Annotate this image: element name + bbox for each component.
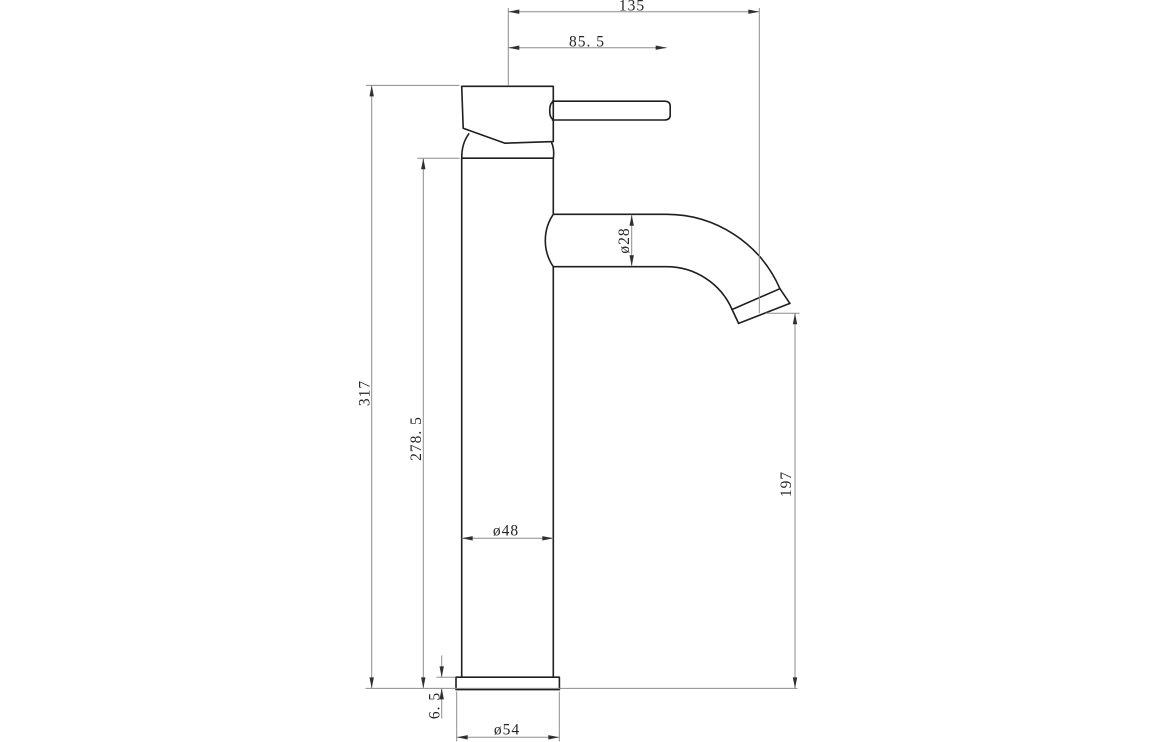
arrowhead xyxy=(508,10,519,14)
dimension-lines xyxy=(366,8,800,742)
dim-label-spout-diameter: ø28 xyxy=(616,227,633,253)
dim-label-overall-width: 135 xyxy=(619,0,645,15)
arrowhead xyxy=(793,677,797,688)
arrowhead xyxy=(542,536,553,540)
dimension-arrowheads xyxy=(370,10,798,740)
dimension-labels: 135 85. 5 317 278. 5 ø28 197 ø48 6. 5 ø5… xyxy=(357,0,796,739)
dim-label-body-height: 278. 5 xyxy=(408,416,425,461)
arrowhead xyxy=(508,46,519,50)
neck-left-curve xyxy=(462,134,469,158)
spout-aerator-band xyxy=(732,289,780,310)
spout-body-seam-arc xyxy=(545,214,553,266)
spout-outer-curve xyxy=(553,214,780,288)
dim-label-overall-height: 317 xyxy=(357,380,374,406)
arrowhead xyxy=(793,313,797,324)
arrowhead xyxy=(656,46,667,50)
arrowhead xyxy=(457,735,468,739)
faucet-technical-drawing: 135 85. 5 317 278. 5 ø28 197 ø48 6. 5 ø5… xyxy=(0,0,1156,742)
arrowhead xyxy=(630,215,634,226)
drawing-page: 135 85. 5 317 278. 5 ø28 197 ø48 6. 5 ø5… xyxy=(0,0,1156,742)
neck-right-curve xyxy=(551,142,553,158)
spout-inner-curve xyxy=(553,267,732,310)
faucet-outline xyxy=(456,86,790,689)
arrowhead xyxy=(440,666,444,677)
dim-label-base-height: 6. 5 xyxy=(427,692,444,719)
handle-joint-arc xyxy=(550,102,553,119)
dim-label-body-diameter: ø48 xyxy=(493,523,519,540)
arrowhead xyxy=(548,735,559,739)
dim-label-base-diameter: ø54 xyxy=(494,722,520,739)
arrowhead xyxy=(748,10,759,14)
arrowhead xyxy=(370,677,374,688)
arrowhead xyxy=(462,536,473,540)
spout-tip-inner-edge xyxy=(732,310,739,324)
arrowhead xyxy=(630,255,634,266)
base-plate xyxy=(456,677,559,689)
faucet-handle-lever xyxy=(553,101,671,120)
faucet-head xyxy=(462,86,554,143)
arrowhead xyxy=(421,677,425,688)
arrowhead xyxy=(421,158,425,169)
dim-label-spout-outlet-height: 197 xyxy=(778,471,795,497)
spout-tip-outer-edge xyxy=(780,289,790,304)
dim-label-handle-projection: 85. 5 xyxy=(569,34,605,51)
arrowhead xyxy=(370,85,374,96)
